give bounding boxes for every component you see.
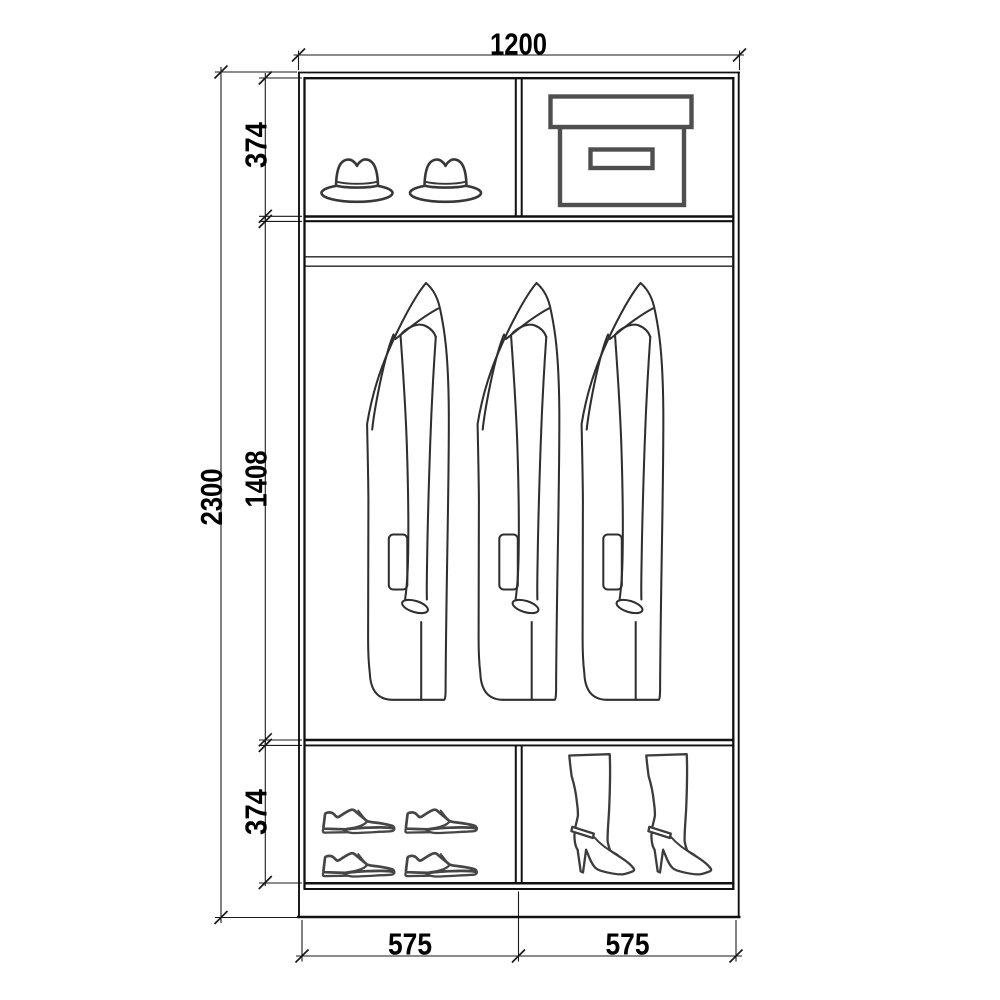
svg-text:374: 374	[238, 788, 273, 835]
svg-text:2300: 2300	[194, 469, 229, 526]
svg-text:1408: 1408	[238, 451, 273, 508]
svg-text:1200: 1200	[490, 27, 547, 62]
svg-text:575: 575	[388, 927, 432, 962]
svg-text:374: 374	[238, 121, 273, 168]
svg-text:575: 575	[606, 927, 650, 962]
